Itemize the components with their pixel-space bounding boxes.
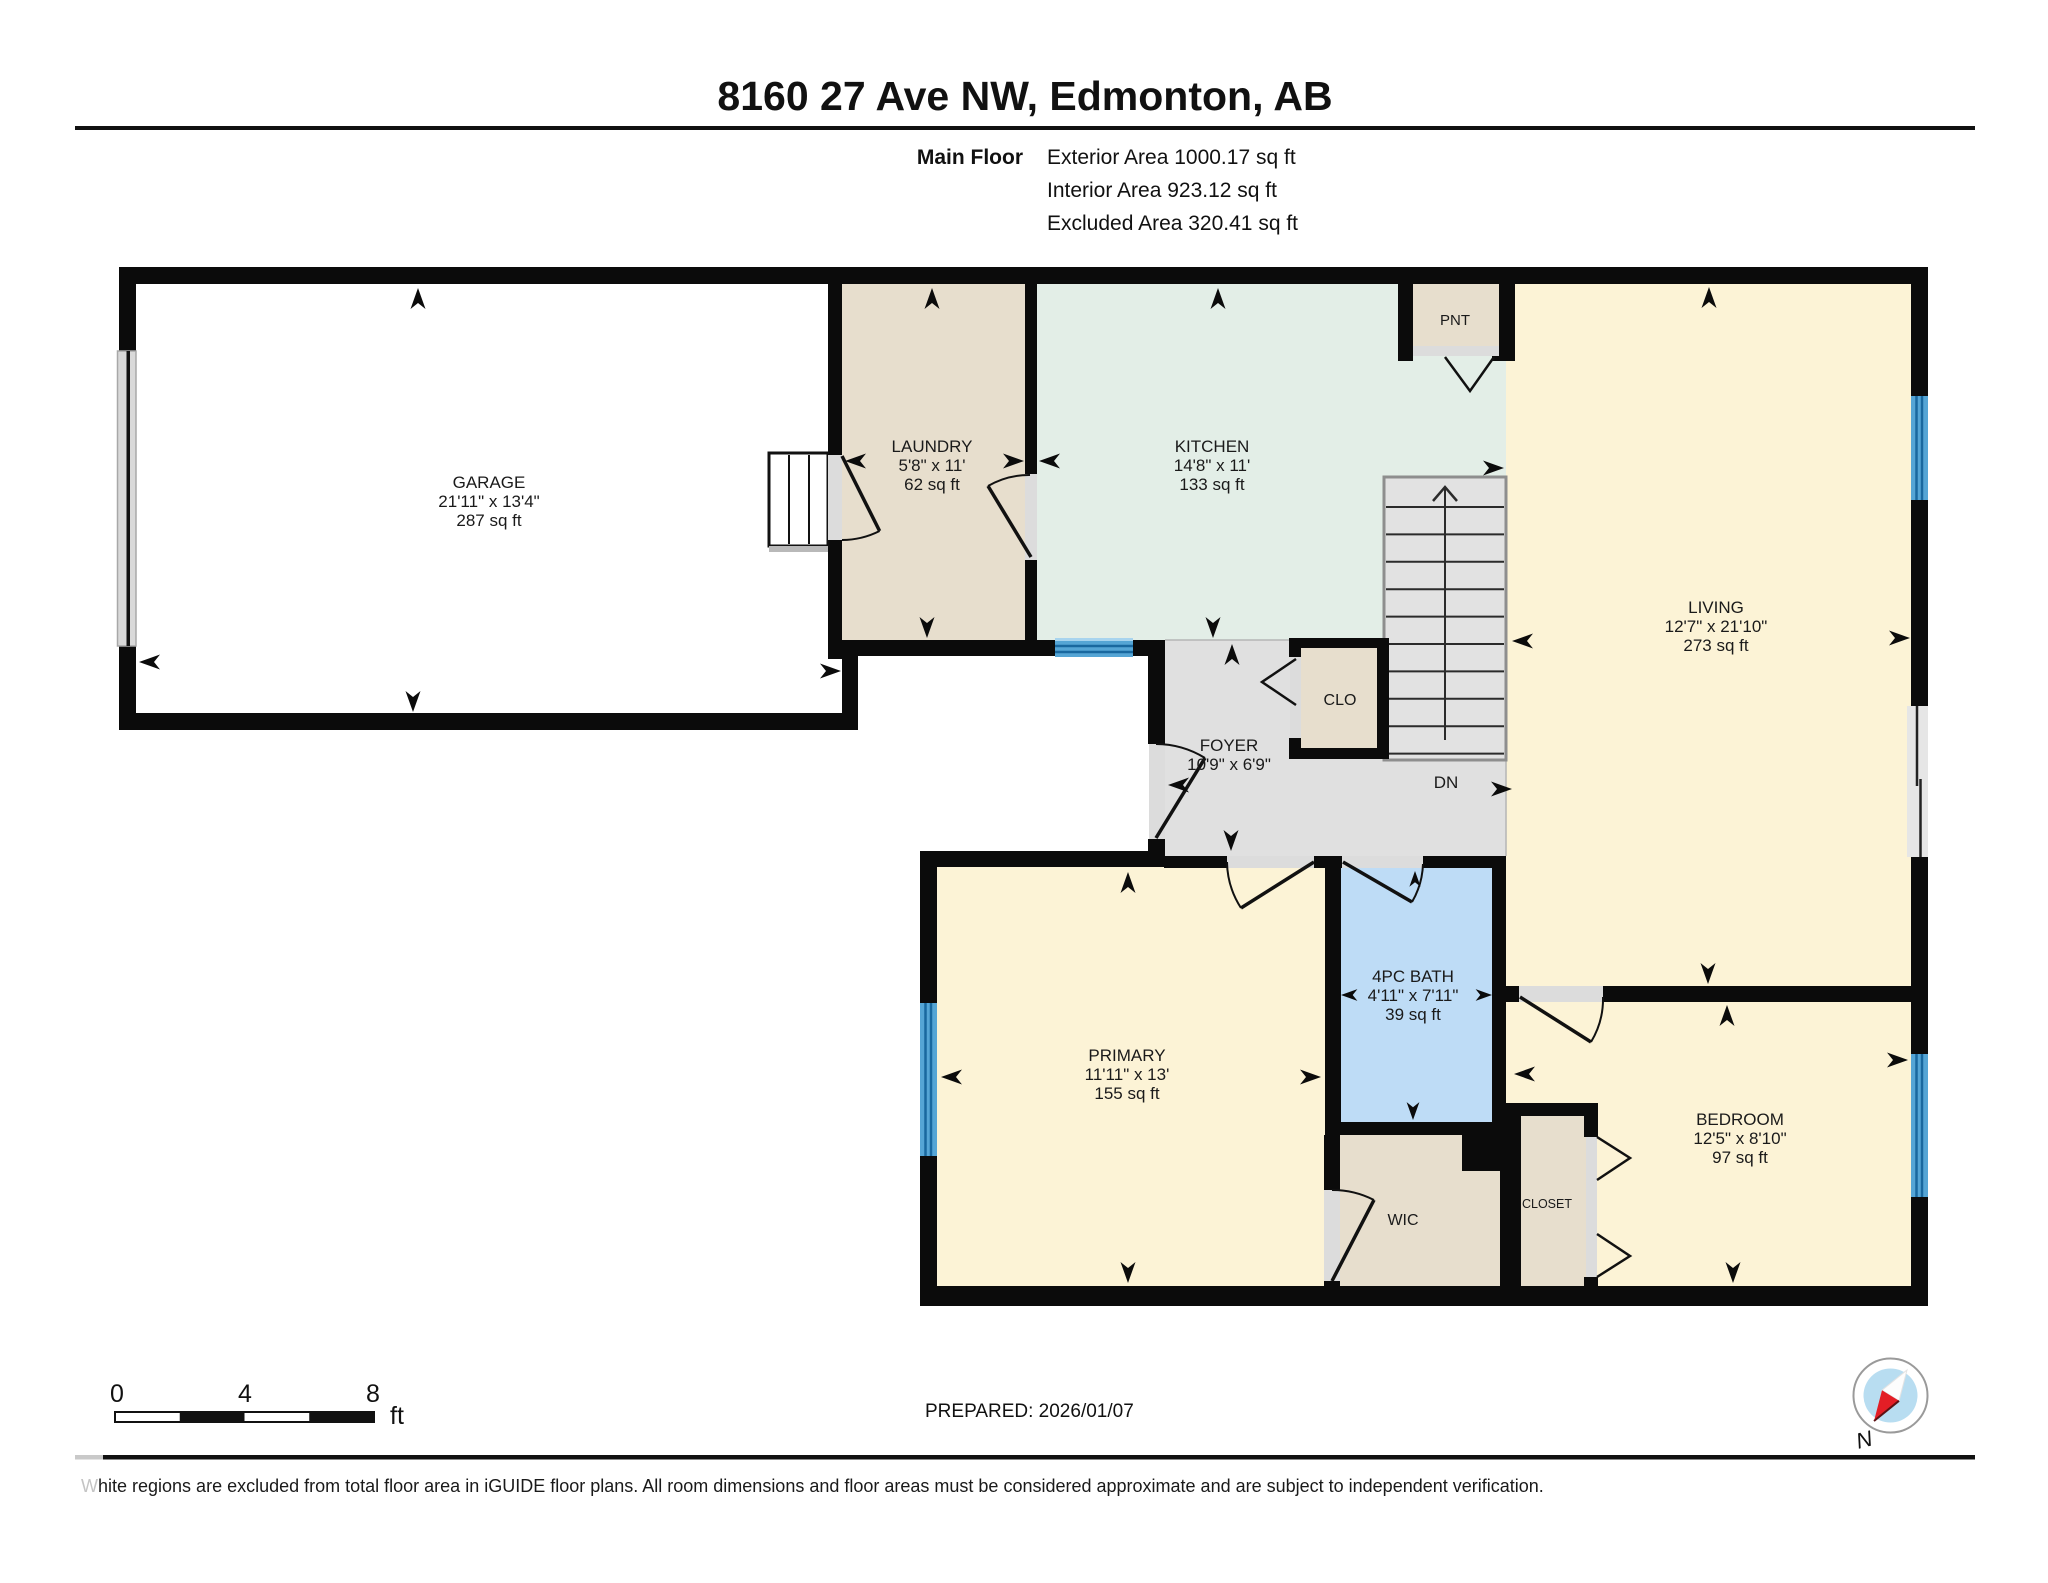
svg-text:155 sq ft: 155 sq ft <box>1094 1084 1159 1103</box>
svg-text:Exterior Area 1000.17 sq ft: Exterior Area 1000.17 sq ft <box>1047 146 1296 169</box>
svg-text:PNT: PNT <box>1440 312 1470 329</box>
svg-text:PRIMARY: PRIMARY <box>1088 1046 1165 1065</box>
svg-text:97 sq ft: 97 sq ft <box>1712 1148 1768 1167</box>
svg-text:CLOSET: CLOSET <box>1522 1197 1572 1211</box>
svg-text:Excluded Area 320.41 sq ft: Excluded Area 320.41 sq ft <box>1047 212 1298 235</box>
svg-text:21'11" x 13'4": 21'11" x 13'4" <box>438 492 539 511</box>
svg-text:Interior Area 923.12 sq ft: Interior Area 923.12 sq ft <box>1047 179 1277 202</box>
svg-text:273 sq ft: 273 sq ft <box>1683 636 1748 655</box>
svg-text:BEDROOM: BEDROOM <box>1696 1110 1784 1129</box>
svg-text:WIC: WIC <box>1387 1212 1418 1229</box>
svg-text:CLO: CLO <box>1324 692 1357 709</box>
svg-text:10'9" x 6'9": 10'9" x 6'9" <box>1187 755 1271 774</box>
svg-text:12'7" x 21'10": 12'7" x 21'10" <box>1665 617 1768 636</box>
svg-text:LAUNDRY: LAUNDRY <box>892 437 973 456</box>
svg-text:8: 8 <box>366 1380 380 1408</box>
svg-text:0: 0 <box>110 1380 124 1408</box>
svg-text:FOYER: FOYER <box>1200 736 1259 755</box>
svg-text:287 sq ft: 287 sq ft <box>456 511 521 530</box>
svg-text:White regions are excluded fro: White regions are excluded from total fl… <box>81 1476 1544 1496</box>
svg-text:4'11" x 7'11": 4'11" x 7'11" <box>1368 986 1459 1005</box>
svg-text:39 sq ft: 39 sq ft <box>1385 1005 1441 1024</box>
svg-text:N: N <box>1853 1426 1875 1454</box>
svg-text:Main Floor: Main Floor <box>917 146 1023 169</box>
svg-text:ft: ft <box>390 1402 404 1430</box>
svg-text:LIVING: LIVING <box>1688 598 1744 617</box>
svg-text:5'8" x 11': 5'8" x 11' <box>898 456 965 475</box>
svg-text:11'11" x 13': 11'11" x 13' <box>1085 1065 1170 1084</box>
svg-text:62 sq ft: 62 sq ft <box>904 475 960 494</box>
svg-text:DN: DN <box>1434 773 1459 792</box>
svg-text:KITCHEN: KITCHEN <box>1175 437 1250 456</box>
svg-text:4: 4 <box>238 1380 252 1408</box>
svg-text:133 sq ft: 133 sq ft <box>1179 475 1244 494</box>
svg-text:PREPARED: 2026/01/07: PREPARED: 2026/01/07 <box>925 1401 1134 1422</box>
svg-text:4PC BATH: 4PC BATH <box>1372 967 1454 986</box>
svg-text:12'5" x 8'10": 12'5" x 8'10" <box>1693 1129 1786 1148</box>
svg-text:8160 27 Ave NW, Edmonton, AB: 8160 27 Ave NW, Edmonton, AB <box>717 73 1332 119</box>
svg-text:14'8" x 11': 14'8" x 11' <box>1174 456 1250 475</box>
svg-text:GARAGE: GARAGE <box>453 473 526 492</box>
